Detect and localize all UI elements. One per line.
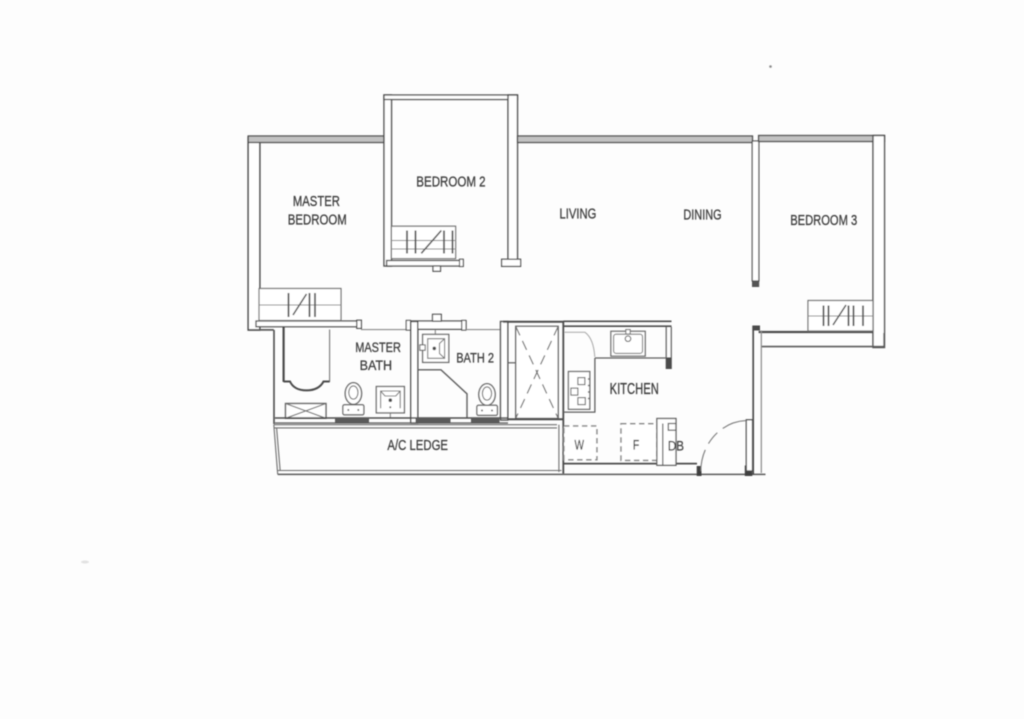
svg-text:F: F xyxy=(633,437,640,453)
svg-text:MASTER: MASTER xyxy=(355,339,401,355)
svg-text:BEDROOM: BEDROOM xyxy=(288,211,347,228)
svg-text:DB: DB xyxy=(668,437,684,453)
svg-text:BATH 2: BATH 2 xyxy=(456,350,494,366)
svg-text:BEDROOM 3: BEDROOM 3 xyxy=(790,212,857,229)
svg-text:KITCHEN: KITCHEN xyxy=(610,381,659,398)
svg-text:MASTER: MASTER xyxy=(293,193,340,210)
svg-text:W: W xyxy=(575,436,585,452)
svg-text:BATH: BATH xyxy=(360,357,393,373)
svg-text:A/C LEDGE: A/C LEDGE xyxy=(387,437,448,454)
svg-text:LIVING: LIVING xyxy=(560,206,597,223)
svg-text:DINING: DINING xyxy=(683,206,721,223)
svg-text:BEDROOM 2: BEDROOM 2 xyxy=(416,173,485,190)
